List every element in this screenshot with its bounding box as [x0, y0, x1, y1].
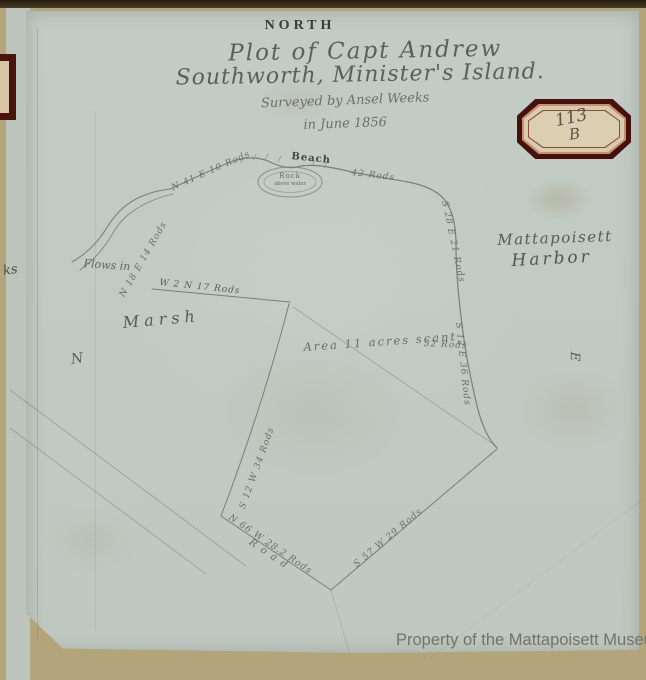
- road-line-a: [10, 390, 246, 566]
- rock-stamp-line1: Rock: [259, 172, 321, 180]
- museum-watermark: Property of the Mattapoisett Museum: [396, 631, 646, 650]
- north-label: NORTH: [240, 18, 360, 34]
- catalog-badge: 113 B: [517, 99, 631, 159]
- harbor-label-line2: Harbor: [511, 247, 592, 271]
- creek-line-west: [72, 189, 170, 262]
- vertex-tail: [331, 590, 349, 652]
- badge-letter: B: [568, 124, 581, 143]
- rock-stamp-line2: above water: [264, 181, 317, 187]
- compass-n-letter: N: [70, 350, 84, 368]
- scanned-map-page: ks: [0, 0, 646, 680]
- rock-stamp-text: Rock above water: [259, 172, 321, 187]
- compass-e-letter: E: [567, 351, 582, 361]
- road-line-b: [10, 428, 206, 574]
